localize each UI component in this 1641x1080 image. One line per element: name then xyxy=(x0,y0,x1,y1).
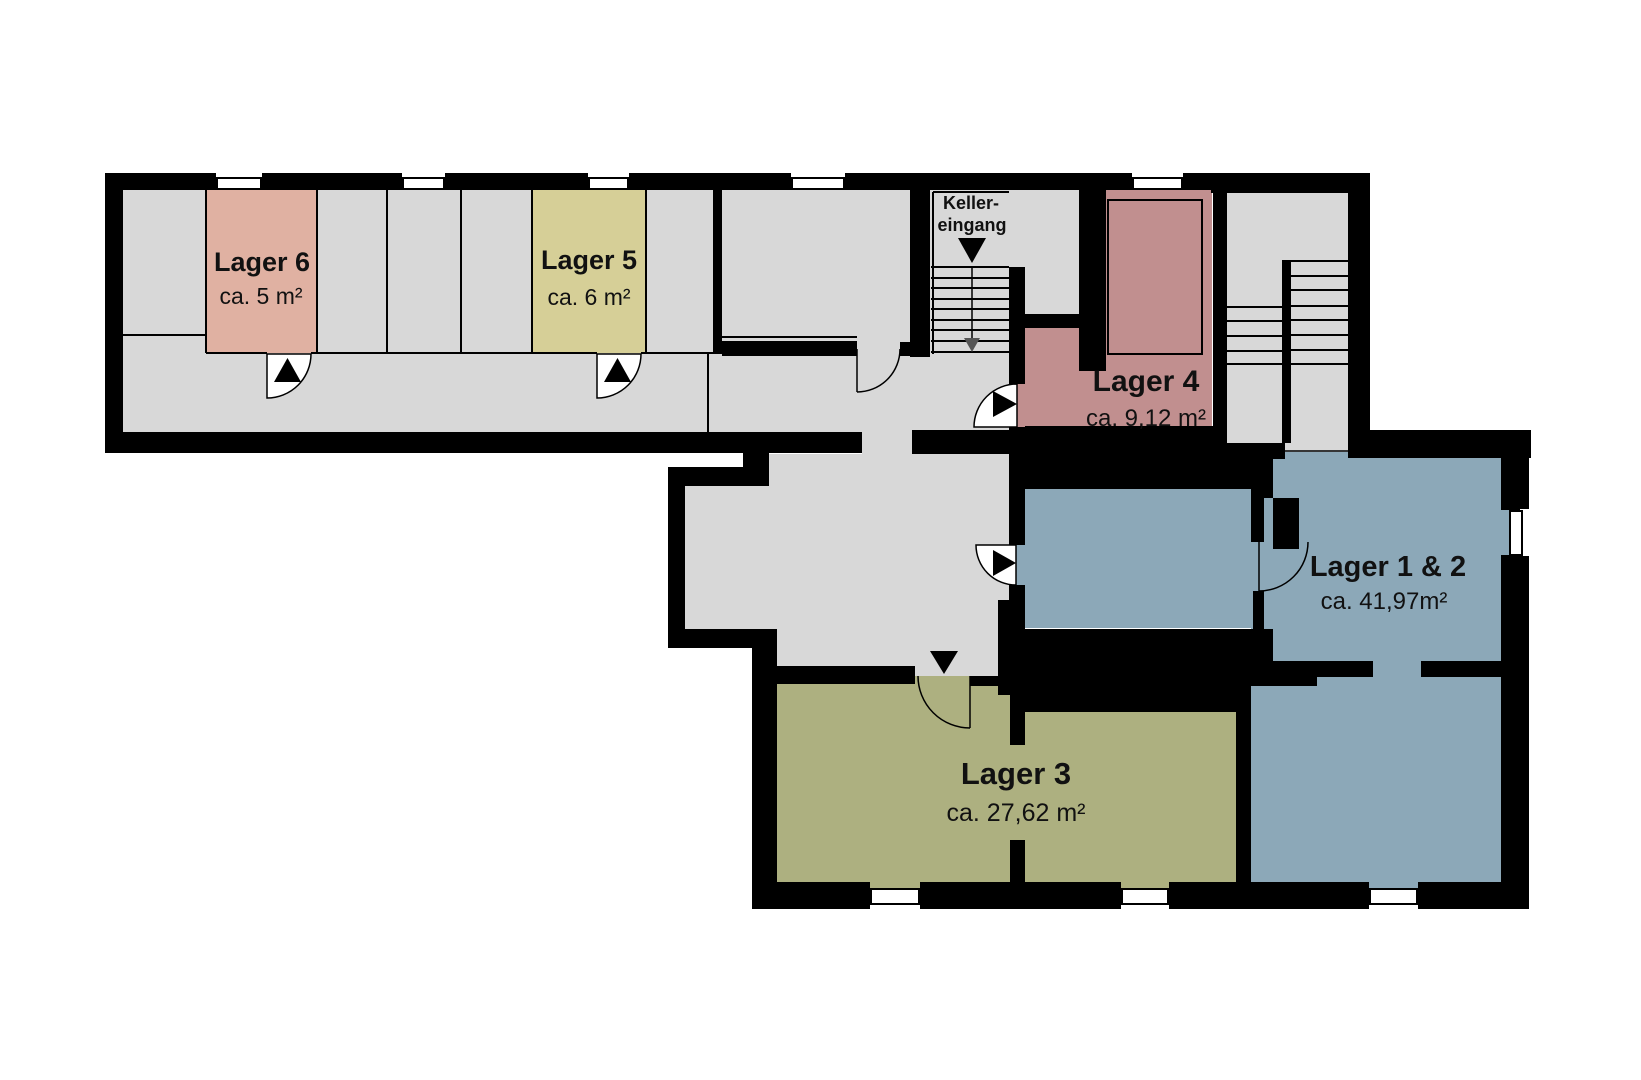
svg-text:ca. 27,62 m²: ca. 27,62 m² xyxy=(947,799,1086,827)
svg-text:Lager 6: Lager 6 xyxy=(214,247,310,277)
svg-text:Lager 5: Lager 5 xyxy=(541,245,637,275)
svg-text:ca. 5 m²: ca. 5 m² xyxy=(219,283,302,309)
svg-text:Lager 4: Lager 4 xyxy=(1093,365,1200,398)
svg-text:ca. 6 m²: ca. 6 m² xyxy=(547,284,630,310)
svg-text:eingang: eingang xyxy=(937,215,1006,235)
svg-text:Lager 1 & 2: Lager 1 & 2 xyxy=(1310,551,1466,583)
svg-text:Keller-: Keller- xyxy=(943,193,999,213)
svg-text:ca. 9,12 m²: ca. 9,12 m² xyxy=(1086,405,1206,432)
svg-text:ca. 41,97m²: ca. 41,97m² xyxy=(1321,588,1448,615)
svg-text:Lager 3: Lager 3 xyxy=(961,756,1071,791)
